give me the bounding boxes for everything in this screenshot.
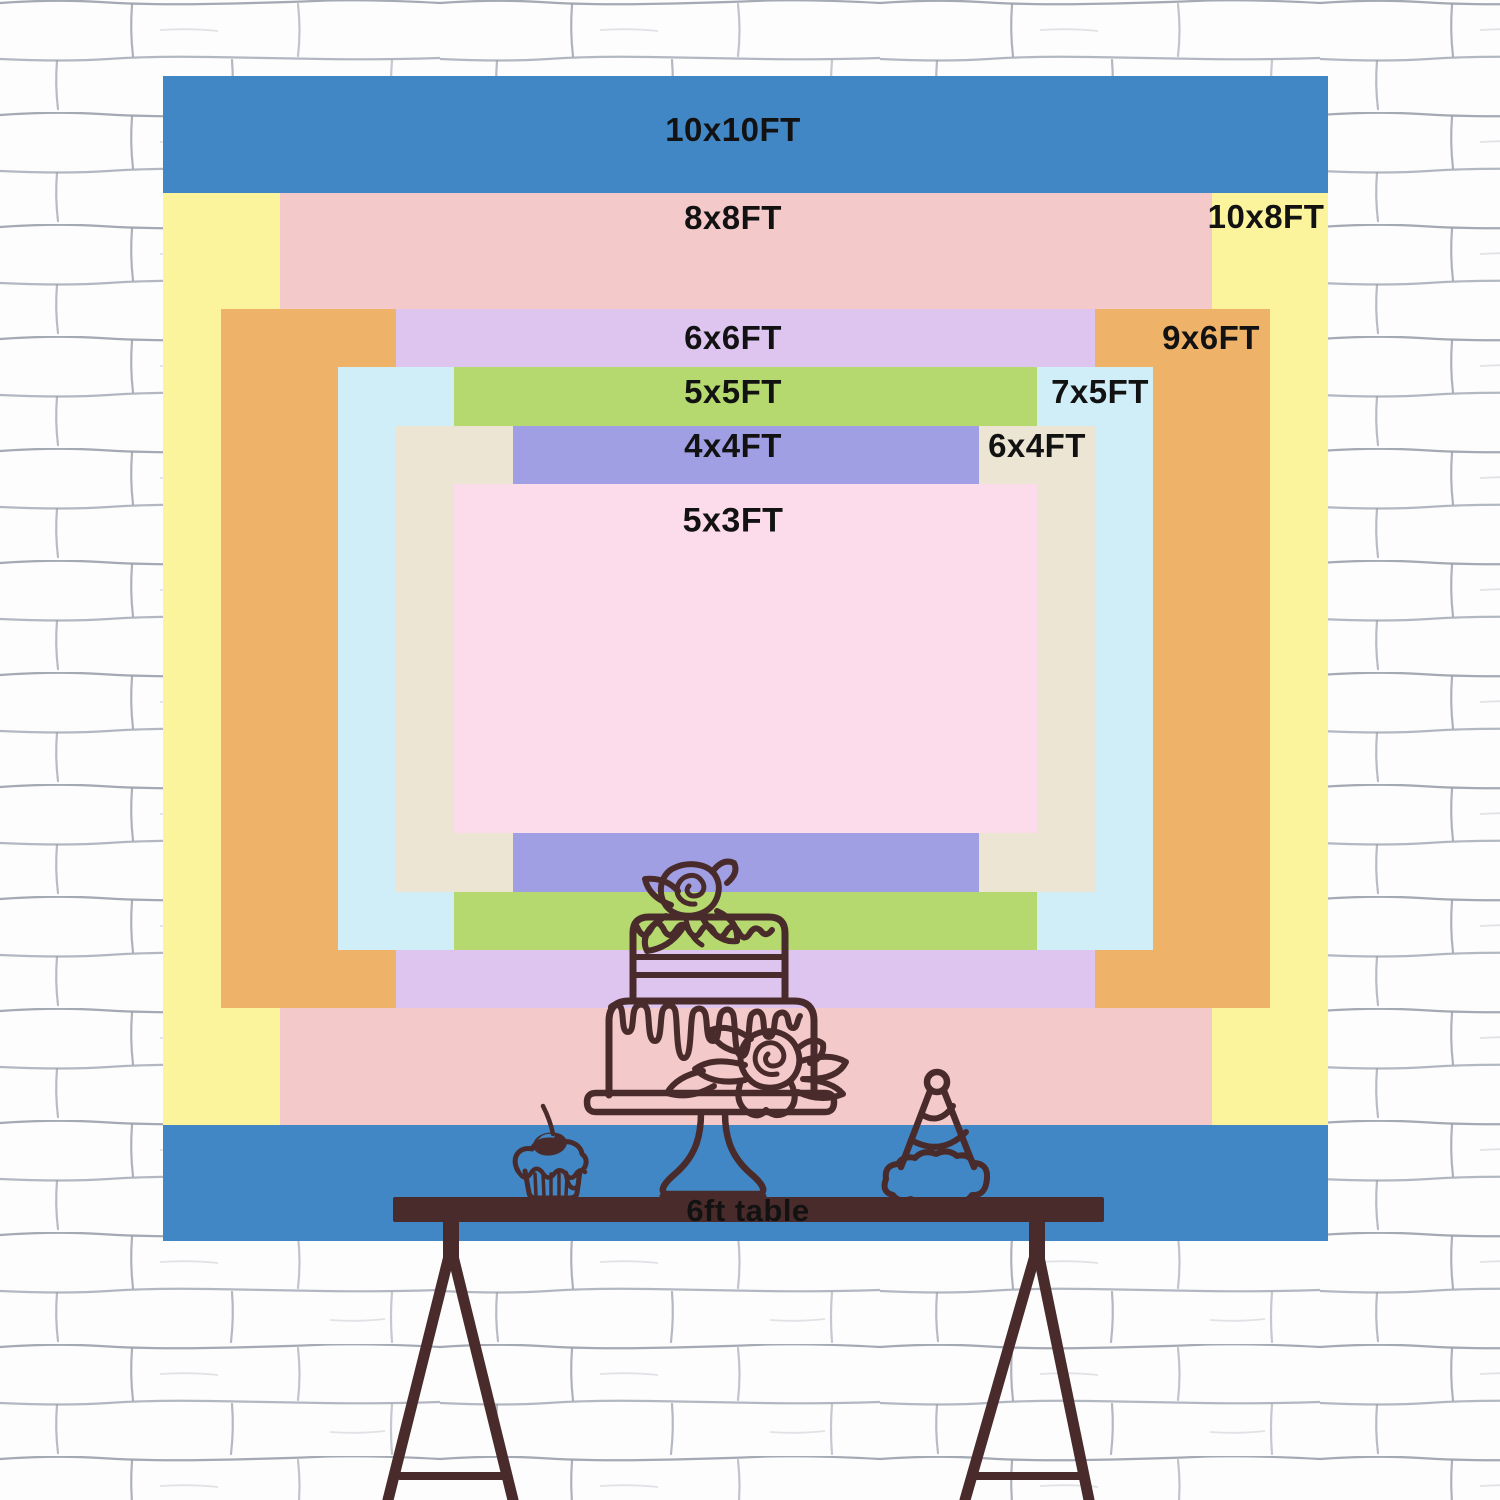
label-5x5ft: 5x5FT: [684, 373, 782, 411]
label-10x10ft: 10x10FT: [665, 111, 801, 149]
label-5x3ft: 5x3FT: [683, 502, 784, 541]
label-4x4ft: 4x4FT: [684, 427, 782, 465]
label-6x6ft: 6x6FT: [684, 319, 782, 357]
label-7x5ft: 7x5FT: [1051, 373, 1149, 411]
label-9x6ft: 9x6FT: [1162, 319, 1260, 357]
label-6ft-table: 6ft table: [686, 1193, 809, 1229]
backdrop-size-chart: 10x10FT 8x8FT 10x8FT 6x6FT 9x6FT 5x5FT 7…: [0, 0, 1500, 1500]
label-6x4ft: 6x4FT: [988, 427, 1086, 465]
label-10x8ft: 10x8FT: [1208, 198, 1325, 236]
label-8x8ft: 8x8FT: [684, 199, 782, 237]
